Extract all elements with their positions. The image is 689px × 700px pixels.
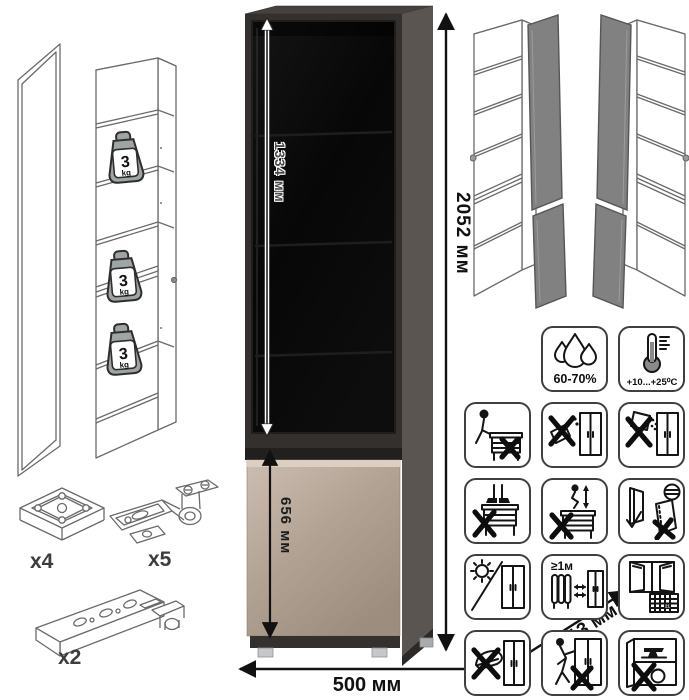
heater-distance-value: ≥1м bbox=[550, 559, 572, 573]
no-direct-sunlight-icon bbox=[464, 554, 531, 620]
door-handling-icon bbox=[618, 478, 685, 544]
no-jumping-icon bbox=[541, 478, 608, 544]
foot-count-label: x4 bbox=[30, 550, 53, 574]
foot-glide-drawing bbox=[12, 482, 112, 554]
no-overload-icon bbox=[618, 630, 685, 696]
room-ventilation-icon: 21 bbox=[618, 554, 685, 620]
no-sitting-icon bbox=[464, 402, 531, 468]
mounting-rail-drawing bbox=[28, 582, 198, 682]
door-mounting-options-drawing bbox=[470, 8, 689, 312]
no-impact-icon bbox=[464, 630, 531, 696]
glass-door-height-label: 1334 мм bbox=[272, 142, 287, 203]
no-standing-icon bbox=[464, 478, 531, 544]
humidity-value: 60-70% bbox=[553, 372, 596, 386]
no-dragging-icon bbox=[541, 630, 608, 696]
rail-count-label: x2 bbox=[58, 646, 81, 670]
temperature-range-icon: +10...+25⁰C bbox=[618, 326, 685, 392]
temperature-value: +10...+25⁰C bbox=[626, 377, 677, 388]
calendar-day-value: 21 bbox=[665, 603, 670, 608]
lower-door-height-label: 656 мм bbox=[277, 497, 294, 554]
no-liquids-icon bbox=[541, 402, 608, 468]
heater-distance-icon: ≥1м bbox=[541, 554, 608, 620]
hinge-count-label: x5 bbox=[148, 548, 171, 572]
no-abrasives-icon bbox=[618, 402, 685, 468]
furniture-spec-sheet: 3 kg 3 kg 3 kg bbox=[0, 0, 689, 700]
width-label: 500 мм bbox=[287, 674, 447, 697]
humidity-60-70-icon: 60-70% bbox=[541, 326, 608, 392]
